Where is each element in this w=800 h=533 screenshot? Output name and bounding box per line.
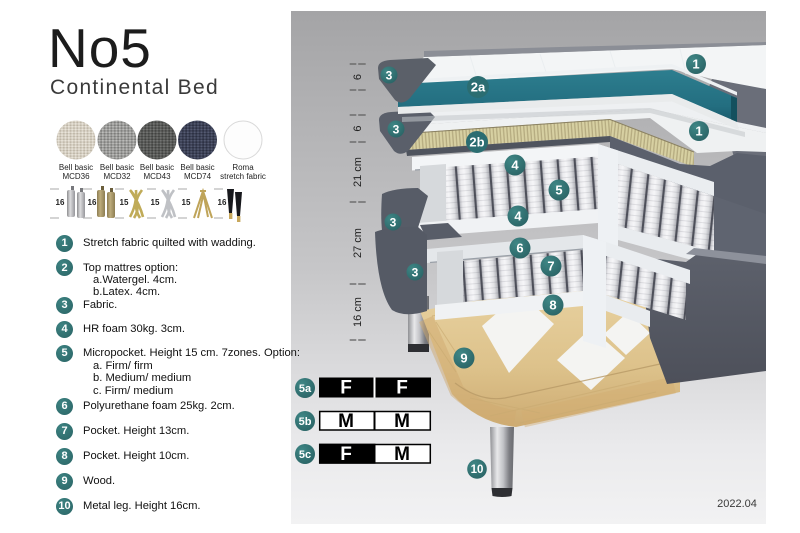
svg-text:F: F	[396, 378, 408, 399]
svg-text:Bell basic: Bell basic	[59, 163, 93, 172]
svg-text:Bell basic: Bell basic	[140, 163, 174, 172]
svg-text:4: 4	[511, 158, 519, 173]
svg-text:6: 6	[352, 125, 364, 131]
svg-text:Bell basic: Bell basic	[180, 163, 214, 172]
svg-text:15: 15	[120, 198, 129, 207]
svg-text:6: 6	[516, 241, 523, 256]
svg-text:3: 3	[390, 216, 397, 230]
svg-text:16: 16	[56, 198, 65, 207]
svg-text:5b: 5b	[299, 416, 312, 428]
svg-text:MCD32: MCD32	[103, 172, 131, 181]
svg-text:16: 16	[218, 198, 227, 207]
svg-text:MCD36: MCD36	[62, 172, 90, 181]
svg-text:stretch fabric: stretch fabric	[220, 172, 266, 181]
svg-text:5: 5	[555, 183, 562, 198]
svg-text:7: 7	[547, 259, 554, 274]
svg-text:27 cm: 27 cm	[352, 228, 364, 258]
svg-text:2b: 2b	[469, 135, 484, 150]
svg-text:F: F	[340, 378, 352, 399]
svg-text:16: 16	[88, 198, 97, 207]
svg-text:Roma: Roma	[232, 163, 254, 172]
svg-text:MCD74: MCD74	[184, 172, 212, 181]
svg-text:1: 1	[692, 57, 699, 72]
svg-text:6: 6	[352, 74, 364, 80]
svg-text:16 cm: 16 cm	[352, 297, 364, 327]
svg-text:1: 1	[695, 124, 702, 139]
svg-text:F: F	[340, 444, 352, 465]
svg-text:3: 3	[393, 123, 400, 137]
svg-text:M: M	[338, 411, 354, 432]
svg-text:15: 15	[151, 198, 160, 207]
svg-text:2a: 2a	[471, 80, 486, 95]
svg-text:21 cm: 21 cm	[352, 157, 364, 187]
svg-text:2022.04: 2022.04	[717, 498, 757, 510]
svg-text:4: 4	[514, 209, 522, 224]
svg-text:M: M	[394, 411, 410, 432]
svg-text:M: M	[394, 444, 410, 465]
svg-text:MCD43: MCD43	[143, 172, 171, 181]
svg-text:3: 3	[386, 69, 393, 83]
svg-text:3: 3	[412, 266, 419, 280]
svg-text:8: 8	[549, 298, 556, 313]
svg-text:5c: 5c	[299, 449, 311, 461]
svg-text:10: 10	[471, 464, 484, 476]
svg-text:9: 9	[460, 351, 467, 366]
svg-text:Bell basic: Bell basic	[100, 163, 134, 172]
svg-text:15: 15	[182, 198, 191, 207]
svg-text:5a: 5a	[299, 383, 312, 395]
